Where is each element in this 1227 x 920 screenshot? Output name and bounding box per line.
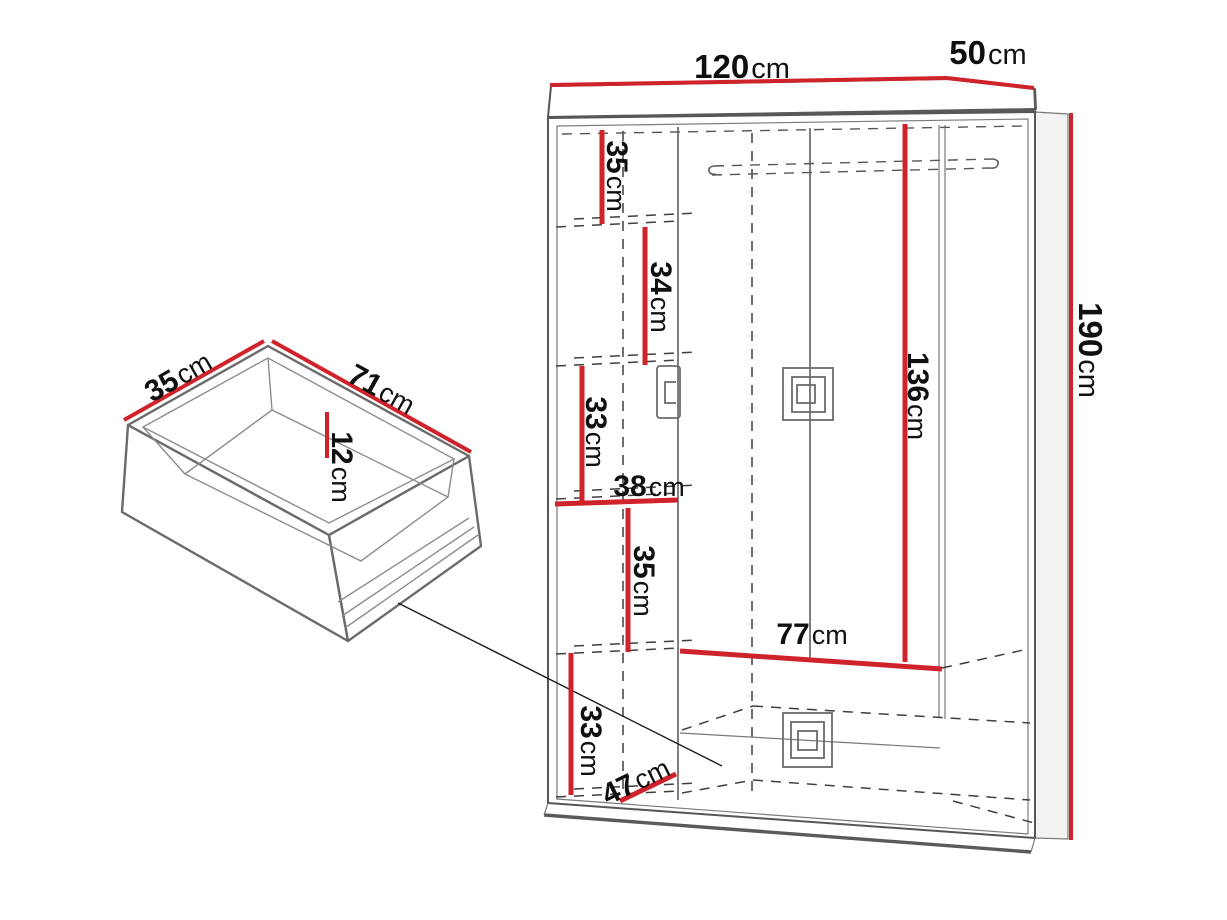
label-width-120: 120cm <box>694 48 790 85</box>
label-shelf-33b: 33cm <box>574 705 607 776</box>
label-hanging-136: 136cm <box>901 352 934 440</box>
label-depth-50: 50cm <box>949 34 1026 71</box>
plinth-right-edge <box>1031 838 1035 852</box>
furniture-dimension-diagram: 120cm 50cm 190cm 136cm 77cm 35cm 34cm 33… <box>0 0 1227 920</box>
label-column-width-38: 38cm <box>613 470 684 503</box>
label-shelf-35a: 35cm <box>600 140 633 211</box>
label-hanging-width-77: 77cm <box>776 618 847 651</box>
label-shelf-35b: 35cm <box>627 545 660 616</box>
label-drawer-12: 12cm <box>325 431 358 502</box>
label-height-190: 190cm <box>1072 302 1109 398</box>
diagram-canvas: 120cm 50cm 190cm 136cm 77cm 35cm 34cm 33… <box>0 0 1227 920</box>
label-shelf-33a: 33cm <box>579 396 612 467</box>
wardrobe-top-right-corner-edge <box>1034 88 1035 112</box>
label-shelf-34: 34cm <box>644 261 677 332</box>
plinth-left-edge <box>544 803 548 815</box>
wardrobe-right-side-panel <box>1035 112 1068 839</box>
